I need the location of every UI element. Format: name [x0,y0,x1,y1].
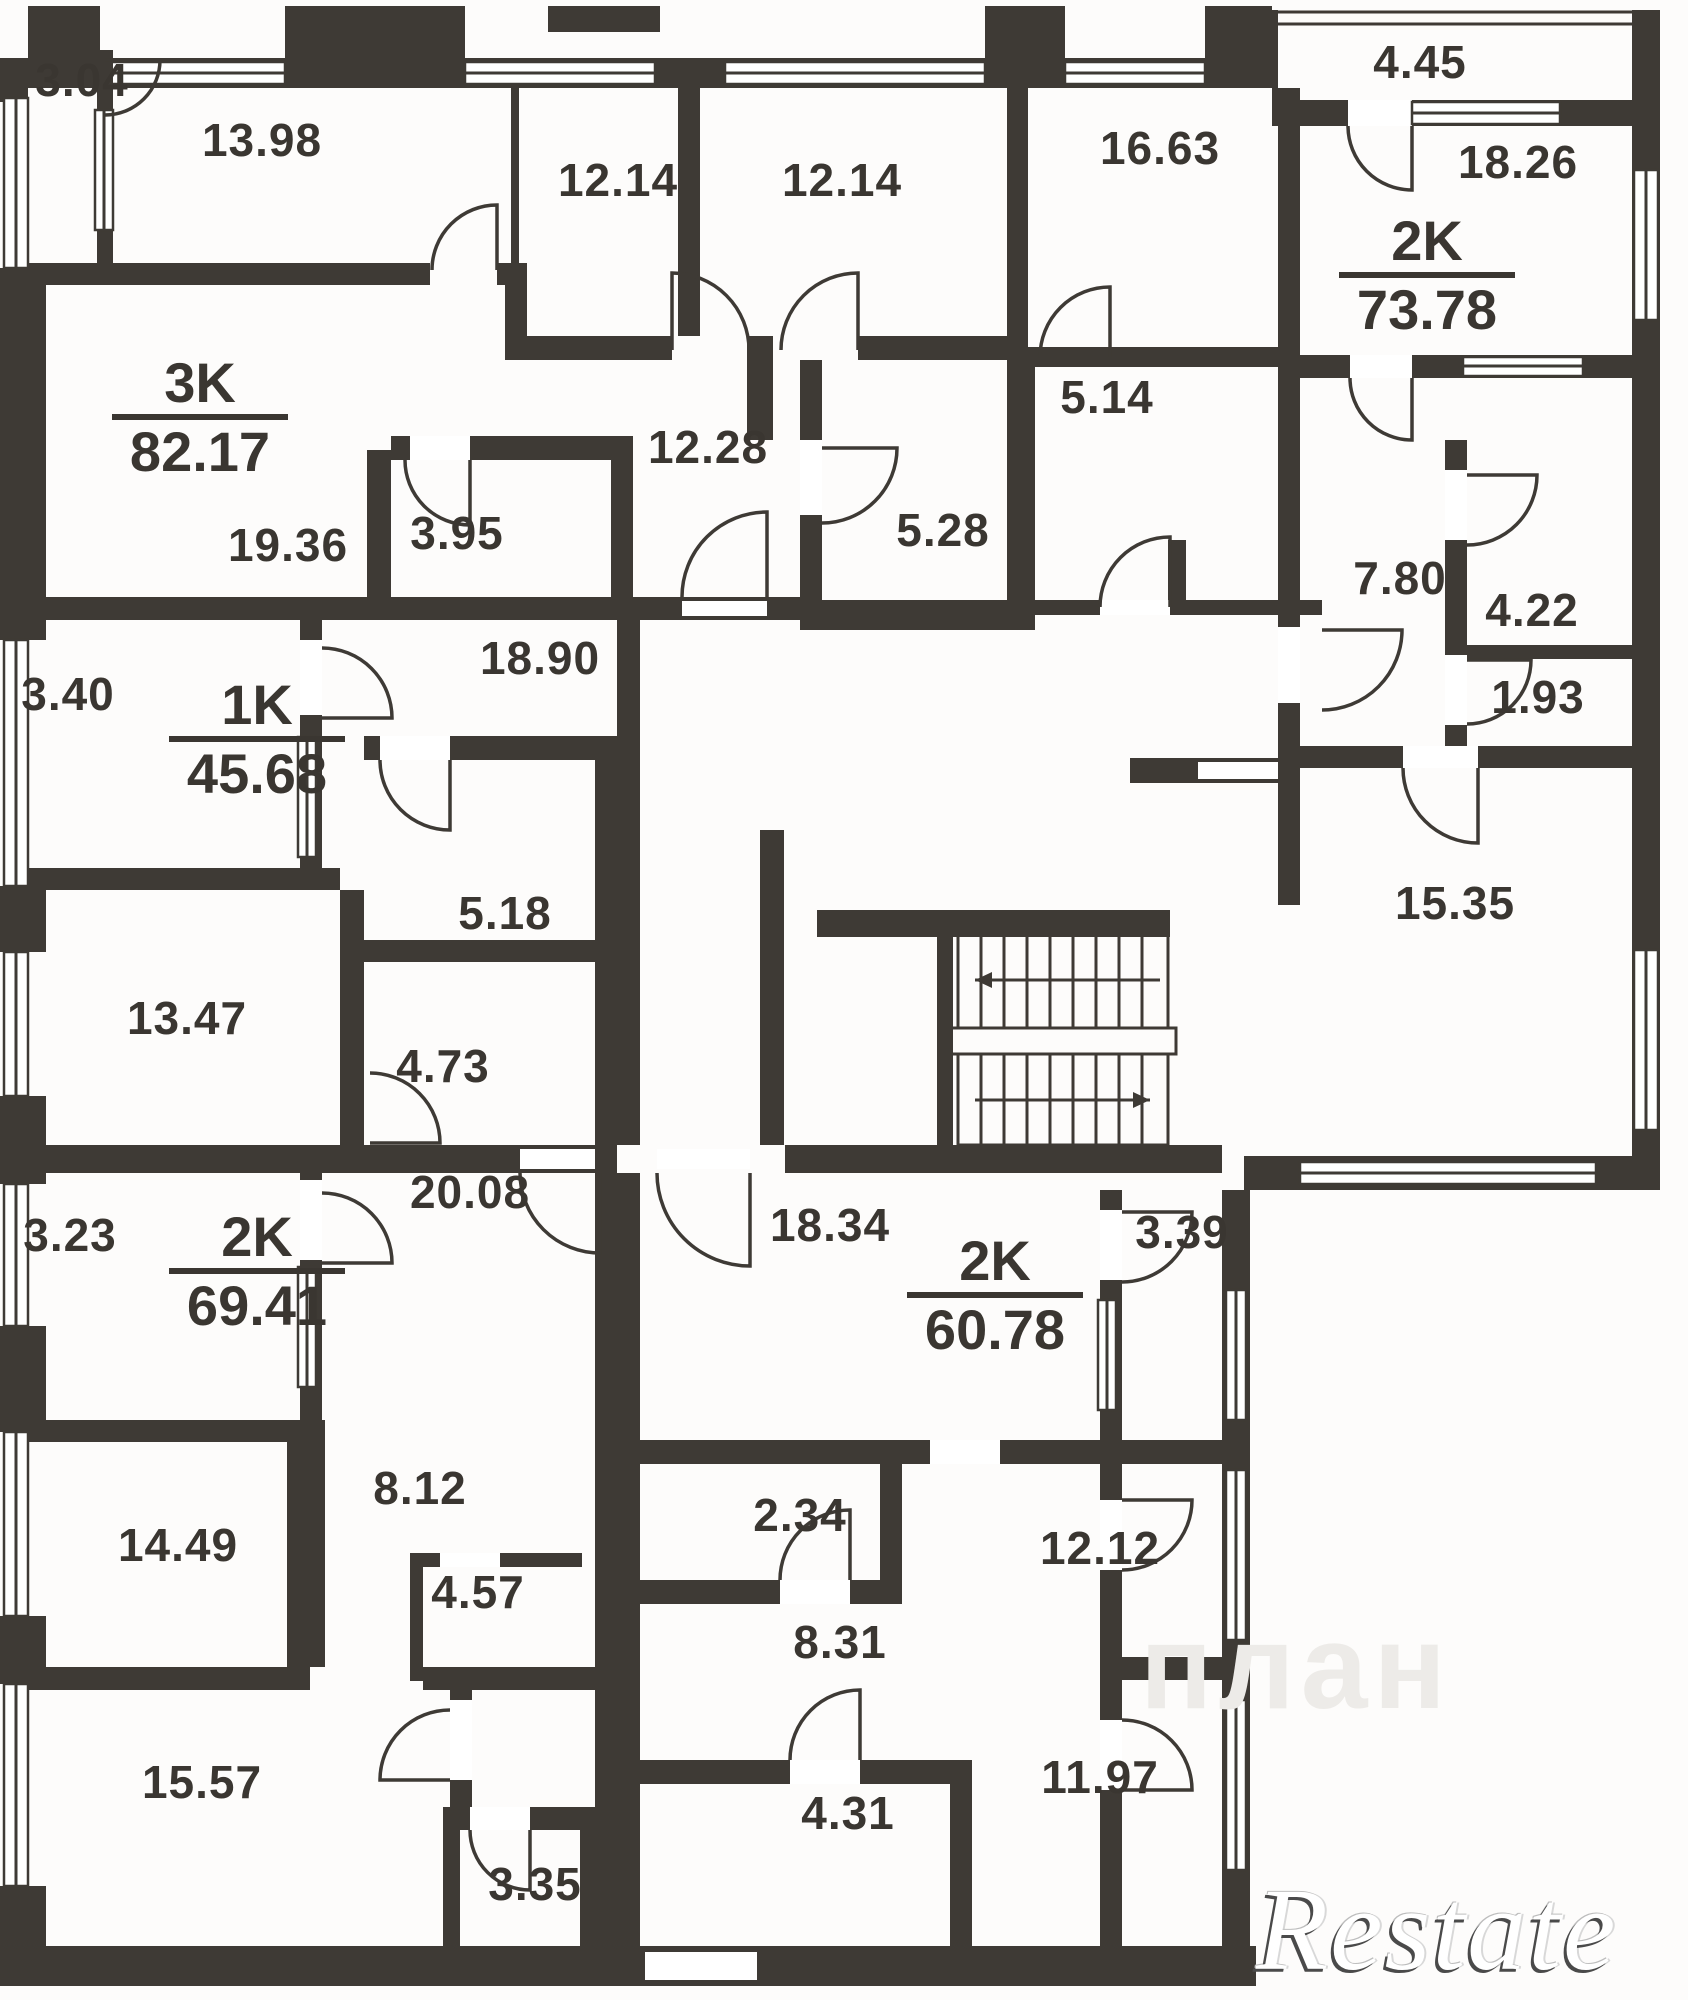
room-area-label: 12.28 [648,420,768,474]
room-area-label: 1.93 [1491,670,1585,724]
room-area-label: 12.14 [782,153,902,207]
room-area-label: 12.12 [1040,1521,1160,1575]
room-area-label: 3.04 [35,53,129,107]
apartment-area-label: 73.78 [1339,280,1515,340]
room-area-label: 5.18 [458,886,552,940]
room-area-label: 4.31 [801,1786,895,1840]
apartment-type-label: 3K [112,354,288,412]
room-area-label: 15.57 [142,1755,262,1809]
floor-plan: 3.0413.9812.1412.1416.634.4518.265.1412.… [0,0,1688,2000]
room-area-label: 12.14 [558,153,678,207]
room-area-label: 3.23 [23,1208,117,1262]
room-area-label: 14.49 [118,1518,238,1572]
room-area-label: 8.31 [793,1615,887,1669]
apartment-area-label: 60.78 [907,1300,1083,1360]
room-area-label: 15.35 [1395,876,1515,930]
room-area-label: 2.34 [753,1488,847,1542]
room-area-label: 4.45 [1373,35,1467,89]
room-area-label: 11.97 [1041,1750,1159,1804]
faint-watermark: план [1140,1598,1452,1736]
room-area-label: 3.40 [21,667,115,721]
apartment-label: 2K60.78 [907,1232,1083,1360]
apartment-label: 1K45.68 [169,676,345,804]
room-area-label: 8.12 [373,1461,467,1515]
room-area-label: 16.63 [1100,121,1220,175]
room-area-label: 20.08 [410,1165,530,1219]
apartment-type-label: 2K [169,1208,345,1266]
apartment-label: 2K69.41 [169,1208,345,1336]
room-area-label: 19.36 [228,518,348,572]
room-area-label: 5.28 [896,503,990,557]
room-area-label: 3.39 [1135,1205,1229,1259]
apartment-area-label: 82.17 [112,422,288,482]
room-area-label: 18.90 [480,631,600,685]
brand-watermark: Restate [1256,1862,1617,1998]
apartment-type-label: 1K [169,676,345,734]
room-area-label: 5.14 [1060,370,1154,424]
apartment-label: 3K82.17 [112,354,288,482]
room-area-label: 13.98 [202,113,322,167]
apartment-label: 2K73.78 [1339,212,1515,340]
apartment-type-label: 2K [907,1232,1083,1290]
room-area-label: 13.47 [127,991,247,1045]
apartment-area-label: 69.41 [169,1276,345,1336]
room-area-label: 4.73 [396,1039,490,1093]
room-area-label: 3.35 [488,1857,582,1911]
apartment-area-label: 45.68 [169,744,345,804]
room-area-label: 18.26 [1458,135,1578,189]
staircase [950,932,1176,1145]
room-area-label: 3.95 [410,506,504,560]
room-area-label: 4.22 [1485,583,1579,637]
apartment-type-label: 2K [1339,212,1515,270]
room-area-label: 4.57 [431,1565,525,1619]
room-area-label: 18.34 [770,1198,890,1252]
room-area-label: 7.80 [1353,551,1447,605]
